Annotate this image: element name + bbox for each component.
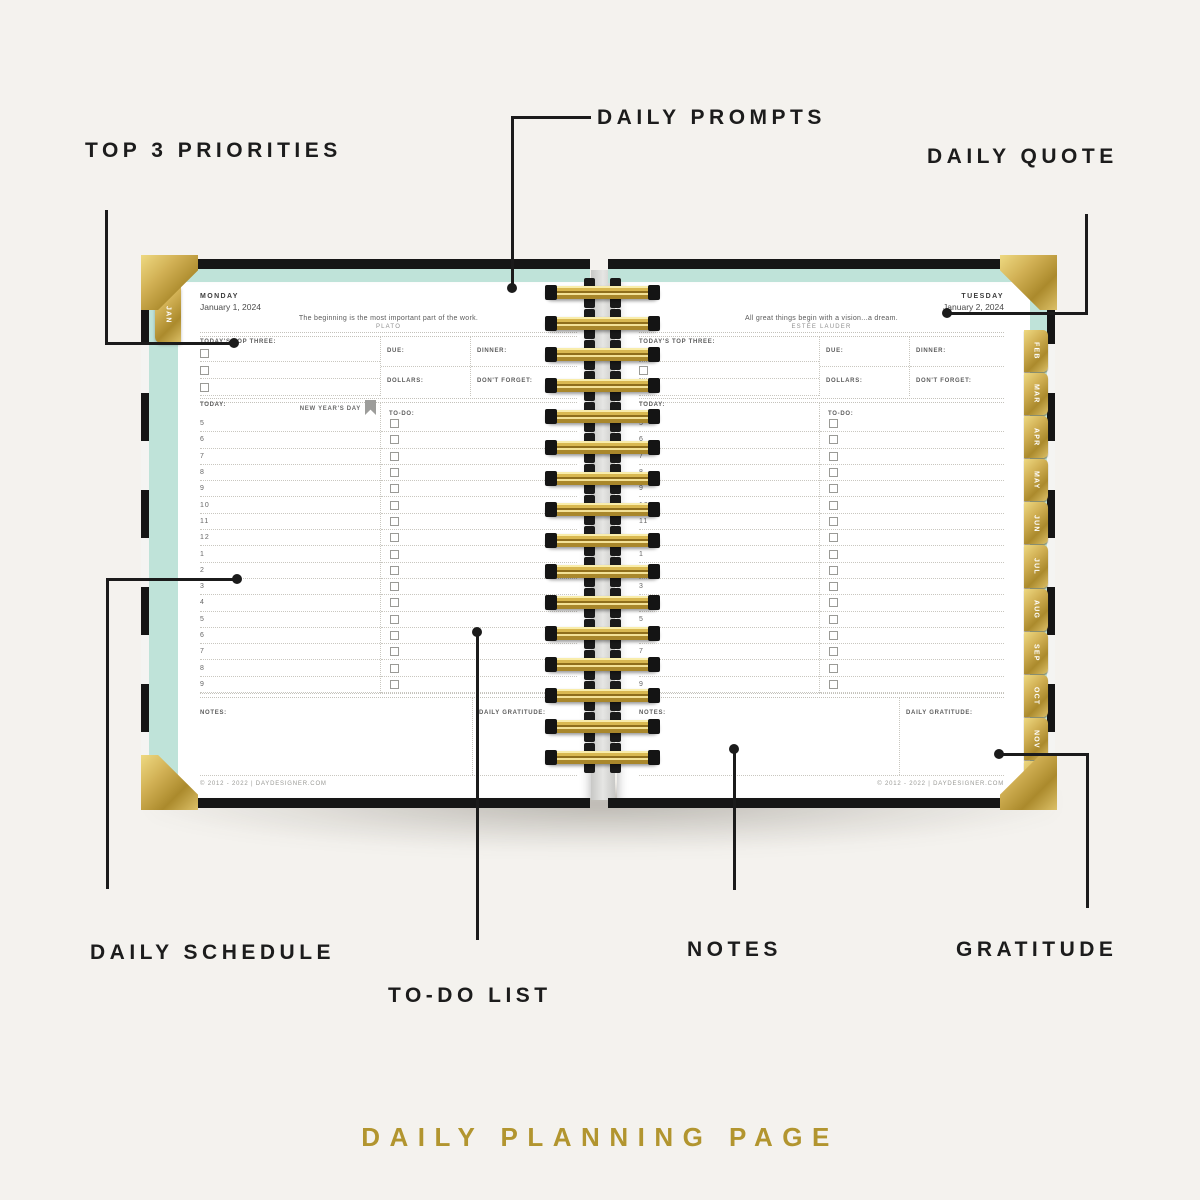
planner-page-right: TUESDAY January 2, 2024 All great things… bbox=[617, 282, 1030, 798]
month-tab-jun: JUN bbox=[1024, 502, 1048, 544]
gratitude-label: DAILY GRATITUDE: bbox=[479, 710, 546, 716]
todo-checkbox bbox=[829, 664, 838, 673]
callout-dot bbox=[229, 338, 239, 348]
todo-checkbox bbox=[829, 631, 838, 640]
callout-dot bbox=[729, 744, 739, 754]
time-slot-row: 5 bbox=[200, 416, 380, 432]
daily-quote: The beginning is the most important part… bbox=[200, 315, 577, 330]
time-label: 8 bbox=[200, 469, 205, 476]
time-slot-row: 7 bbox=[200, 644, 380, 660]
time-slot-row: 10 bbox=[200, 497, 380, 513]
time-slot-row: 8 bbox=[639, 465, 819, 481]
todo-row bbox=[820, 497, 1004, 513]
month-tab-label: AUG bbox=[1033, 600, 1040, 619]
quote-text: The beginning is the most important part… bbox=[200, 315, 577, 322]
month-tab-aug: AUG bbox=[1024, 589, 1048, 631]
spiral-coil bbox=[546, 410, 659, 423]
schedule-section: TODAY: TO-DO: 56789101112123456789 bbox=[639, 402, 1004, 693]
todo-row bbox=[820, 644, 1004, 660]
todo-checkbox bbox=[829, 484, 838, 493]
month-tab-feb: FEB bbox=[1024, 330, 1048, 372]
callout-notes: NOTES bbox=[687, 938, 782, 962]
month-tab-apr: APR bbox=[1024, 416, 1048, 458]
time-label: 1 bbox=[200, 551, 205, 558]
callout-line bbox=[999, 753, 1089, 756]
month-tab-jul: JUL bbox=[1024, 545, 1048, 587]
date-header: TUESDAY January 2, 2024 bbox=[943, 293, 1004, 312]
schedule-section: TODAY: NEW YEAR'S DAY TO-DO: 56789101112… bbox=[200, 402, 577, 693]
todo-checkbox bbox=[829, 598, 838, 607]
todo-row bbox=[820, 530, 1004, 546]
todo-row bbox=[820, 432, 1004, 448]
spiral-coil bbox=[546, 348, 659, 361]
time-column: 56789101112123456789 bbox=[200, 416, 380, 693]
page-footer: © 2012 - 2022 | DAYDESIGNER.COM bbox=[200, 781, 577, 787]
time-slot-row: 4 bbox=[639, 595, 819, 611]
todo-checkbox bbox=[829, 533, 838, 542]
time-slot-row: 9 bbox=[200, 481, 380, 497]
day-name: TUESDAY bbox=[943, 293, 1004, 300]
time-slot-row: 9 bbox=[639, 481, 819, 497]
month-tab-label: FEB bbox=[1033, 342, 1040, 360]
priority-row bbox=[200, 362, 380, 379]
month-tab-label: JUL bbox=[1033, 558, 1040, 575]
time-label: 8 bbox=[200, 665, 205, 672]
callout-dot bbox=[507, 283, 517, 293]
month-tab-sep: SEP bbox=[1024, 632, 1048, 674]
spiral-coil bbox=[546, 596, 659, 609]
todo-row bbox=[820, 579, 1004, 595]
top-three-rows bbox=[639, 345, 819, 396]
time-slot-row: 12 bbox=[639, 530, 819, 546]
callout-line bbox=[1085, 214, 1088, 315]
time-slot-row: 6 bbox=[200, 432, 380, 448]
dinner-label: DINNER: bbox=[916, 348, 946, 354]
month-tab-mar: MAR bbox=[1024, 373, 1048, 415]
bookmark-flag-icon bbox=[365, 400, 376, 415]
time-label: 11 bbox=[200, 518, 209, 525]
time-slot-row: 1 bbox=[200, 546, 380, 562]
priority-row bbox=[639, 379, 819, 396]
callout-line bbox=[1086, 753, 1089, 908]
todo-row bbox=[820, 449, 1004, 465]
callout-top-priorities: TOP 3 PRIORITIES bbox=[85, 139, 342, 163]
spiral-coil bbox=[546, 441, 659, 454]
spiral-binding bbox=[546, 286, 659, 786]
priority-row bbox=[639, 362, 819, 379]
time-label: 7 bbox=[200, 648, 205, 655]
callout-line bbox=[511, 116, 514, 288]
callout-line bbox=[476, 631, 479, 940]
callout-line bbox=[106, 578, 236, 581]
cover-edge-bottom-left bbox=[179, 798, 590, 808]
time-slot-row: 7 bbox=[639, 644, 819, 660]
todo-checkbox bbox=[390, 468, 399, 477]
month-tab-label: NOV bbox=[1033, 730, 1040, 749]
todo-checkbox bbox=[390, 631, 399, 640]
priority-row bbox=[200, 379, 380, 396]
priority-row bbox=[639, 345, 819, 362]
spiral-coil bbox=[546, 565, 659, 578]
time-label: 6 bbox=[200, 436, 205, 443]
mint-edge-top-left bbox=[179, 269, 590, 283]
callout-line bbox=[511, 116, 591, 119]
notes-section: NOTES: DAILY GRATITUDE: bbox=[200, 698, 577, 776]
callout-dot bbox=[942, 308, 952, 318]
time-slot-row: 12 bbox=[200, 530, 380, 546]
callout-line bbox=[733, 748, 736, 890]
spiral-coil bbox=[546, 534, 659, 547]
spiral-coil bbox=[546, 658, 659, 671]
month-tab-label: MAR bbox=[1033, 384, 1040, 404]
time-label: 5 bbox=[200, 420, 205, 427]
todo-checkbox bbox=[390, 550, 399, 559]
holiday-label: NEW YEAR'S DAY bbox=[300, 406, 361, 412]
todo-checkbox bbox=[829, 501, 838, 510]
time-label: 4 bbox=[200, 599, 205, 606]
due-label: DUE: bbox=[387, 348, 404, 354]
todo-row bbox=[820, 677, 1004, 693]
notes-label: NOTES: bbox=[200, 710, 227, 716]
todo-checkbox bbox=[829, 517, 838, 526]
time-slot-row: 7 bbox=[200, 449, 380, 465]
top-three-section: TODAY'S TOP THREE: DUE: DOLLARS: DINNER:… bbox=[639, 337, 1004, 396]
dont-forget-label: DON'T FORGET: bbox=[916, 378, 972, 384]
quote-author: ESTÉE LAUDER bbox=[639, 324, 1004, 330]
gratitude-box: DAILY GRATITUDE: bbox=[899, 698, 1004, 775]
spiral-coil bbox=[546, 503, 659, 516]
todo-checkbox bbox=[829, 550, 838, 559]
todo-row bbox=[820, 660, 1004, 676]
time-slot-row: 8 bbox=[200, 660, 380, 676]
todo-column bbox=[819, 416, 1004, 693]
priority-row bbox=[200, 345, 380, 362]
time-slot-row: 4 bbox=[200, 595, 380, 611]
time-label: 9 bbox=[200, 485, 205, 492]
page-footer: © 2012 - 2022 | DAYDESIGNER.COM bbox=[639, 781, 1004, 787]
todo-checkbox bbox=[390, 664, 399, 673]
image-caption: DAILY PLANNING PAGE bbox=[0, 1122, 1200, 1153]
gratitude-label: DAILY GRATITUDE: bbox=[906, 710, 973, 716]
callout-daily-prompts: DAILY PROMPTS bbox=[597, 106, 826, 130]
mint-edge-top-right bbox=[608, 269, 1036, 283]
day-date: January 1, 2024 bbox=[200, 302, 261, 312]
time-slot-row: 6 bbox=[639, 432, 819, 448]
top-three-section: TODAY'S TOP THREE: DUE: DOLLARS: DINNER:… bbox=[200, 337, 577, 396]
spiral-coil bbox=[546, 286, 659, 299]
todo-checkbox bbox=[390, 501, 399, 510]
callout-dot bbox=[994, 749, 1004, 759]
todo-checkbox bbox=[829, 468, 838, 477]
todo-row bbox=[820, 595, 1004, 611]
todo-checkbox bbox=[390, 615, 399, 624]
todo-checkbox bbox=[390, 647, 399, 656]
todo-row bbox=[820, 563, 1004, 579]
time-slot-row: 7 bbox=[639, 449, 819, 465]
todo-checkbox bbox=[390, 435, 399, 444]
notes-section: NOTES: DAILY GRATITUDE: bbox=[639, 698, 1004, 776]
today-label: TODAY: bbox=[200, 402, 226, 408]
todo-row bbox=[820, 546, 1004, 562]
time-label: 9 bbox=[200, 681, 205, 688]
month-tab-label: JAN bbox=[165, 306, 172, 324]
day-date: January 2, 2024 bbox=[943, 302, 1004, 312]
spiral-coil bbox=[546, 689, 659, 702]
spiral-coil bbox=[546, 627, 659, 640]
spiral-coil bbox=[546, 720, 659, 733]
time-slot-row: 6 bbox=[200, 628, 380, 644]
time-column: 56789101112123456789 bbox=[639, 416, 819, 693]
todo-checkbox bbox=[390, 419, 399, 428]
todo-checkbox bbox=[829, 582, 838, 591]
cover-edge-top-right bbox=[608, 259, 1042, 269]
holiday-flag-group: NEW YEAR'S DAY bbox=[300, 402, 376, 415]
todo-checkbox bbox=[390, 566, 399, 575]
callout-gratitude: GRATITUDE bbox=[956, 938, 1117, 962]
time-slot-row: 9 bbox=[639, 677, 819, 693]
time-slot-row: 9 bbox=[200, 677, 380, 693]
todo-checkbox bbox=[390, 484, 399, 493]
callout-daily-quote: DAILY QUOTE bbox=[927, 145, 1118, 169]
todo-checkbox bbox=[829, 680, 838, 689]
todo-checkbox bbox=[390, 517, 399, 526]
time-label: 12 bbox=[200, 534, 210, 541]
todo-checkbox bbox=[829, 647, 838, 656]
time-label: 2 bbox=[200, 567, 205, 574]
time-slot-row: 5 bbox=[200, 612, 380, 628]
todo-row bbox=[820, 416, 1004, 432]
todo-checkbox bbox=[829, 566, 838, 575]
date-header: MONDAY January 1, 2024 bbox=[200, 293, 261, 312]
callout-line bbox=[106, 578, 109, 889]
callout-line bbox=[949, 312, 1088, 315]
time-slot-row: 10 bbox=[639, 497, 819, 513]
product-feature-diagram: MONDAY January 1, 2024 The beginning is … bbox=[0, 0, 1200, 1200]
due-label: DUE: bbox=[826, 348, 843, 354]
spiral-coil bbox=[546, 317, 659, 330]
todo-row bbox=[820, 628, 1004, 644]
priority-checkbox bbox=[200, 366, 209, 375]
priority-checkbox bbox=[200, 349, 209, 358]
month-tab-label: OCT bbox=[1033, 687, 1040, 705]
time-slot-row: 8 bbox=[200, 465, 380, 481]
time-slot-row: 1 bbox=[639, 546, 819, 562]
todo-row bbox=[820, 481, 1004, 497]
todo-row bbox=[820, 612, 1004, 628]
todo-checkbox bbox=[829, 419, 838, 428]
time-label: 10 bbox=[200, 502, 210, 509]
todo-checkbox bbox=[390, 533, 399, 542]
time-label: 3 bbox=[200, 583, 205, 590]
month-tab-oct: OCT bbox=[1024, 675, 1048, 717]
time-slot-row: 2 bbox=[200, 563, 380, 579]
todo-checkbox bbox=[829, 452, 838, 461]
time-label: 5 bbox=[200, 616, 205, 623]
todo-checkbox bbox=[390, 598, 399, 607]
month-tab-label: APR bbox=[1033, 428, 1040, 446]
month-tab-label: SEP bbox=[1033, 644, 1040, 662]
todo-row bbox=[820, 514, 1004, 530]
todo-checkbox bbox=[390, 680, 399, 689]
spiral-coil bbox=[546, 472, 659, 485]
time-label: 7 bbox=[200, 453, 205, 460]
callout-line bbox=[105, 342, 235, 345]
month-tab-may: MAY bbox=[1024, 459, 1048, 501]
dollars-label: DOLLARS: bbox=[826, 378, 863, 384]
planner-page-left: MONDAY January 1, 2024 The beginning is … bbox=[178, 282, 591, 798]
time-slot-row: 3 bbox=[200, 579, 380, 595]
cover-edge-top-left bbox=[179, 259, 590, 269]
time-slot-row: 5 bbox=[639, 612, 819, 628]
dont-forget-label: DON'T FORGET: bbox=[477, 378, 533, 384]
time-slot-row: 5 bbox=[639, 416, 819, 432]
top-three-rows bbox=[200, 345, 380, 396]
callout-dot bbox=[472, 627, 482, 637]
cover-edge-bottom-right bbox=[608, 798, 1042, 808]
month-tab-label: MAY bbox=[1033, 471, 1040, 490]
todo-checkbox bbox=[390, 582, 399, 591]
time-slot-row: 11 bbox=[639, 514, 819, 530]
todo-checkbox bbox=[829, 615, 838, 624]
time-slot-row: 3 bbox=[639, 579, 819, 595]
month-tabs: FEBMARAPRMAYJUNJULAUGSEPOCTNOVDEC bbox=[1024, 330, 1048, 804]
dinner-label: DINNER: bbox=[477, 348, 507, 354]
time-slot-row: 8 bbox=[639, 660, 819, 676]
time-label: 6 bbox=[200, 632, 205, 639]
dollars-label: DOLLARS: bbox=[387, 378, 424, 384]
callout-daily-schedule: DAILY SCHEDULE bbox=[90, 941, 335, 965]
quote-author: PLATO bbox=[200, 324, 577, 330]
callout-todo-list: TO-DO LIST bbox=[388, 984, 552, 1008]
time-slot-row: 11 bbox=[200, 514, 380, 530]
todo-checkbox bbox=[829, 435, 838, 444]
day-name: MONDAY bbox=[200, 293, 261, 300]
todo-checkbox bbox=[390, 452, 399, 461]
time-slot-row: 6 bbox=[639, 628, 819, 644]
month-tab-label: JUN bbox=[1033, 515, 1040, 533]
priority-checkbox bbox=[200, 383, 209, 392]
spiral-coil bbox=[546, 751, 659, 764]
callout-dot bbox=[232, 574, 242, 584]
todo-row bbox=[820, 465, 1004, 481]
time-slot-row: 2 bbox=[639, 563, 819, 579]
spiral-coil bbox=[546, 379, 659, 392]
callout-line bbox=[105, 210, 108, 345]
mint-flyleaf-left bbox=[149, 268, 179, 800]
